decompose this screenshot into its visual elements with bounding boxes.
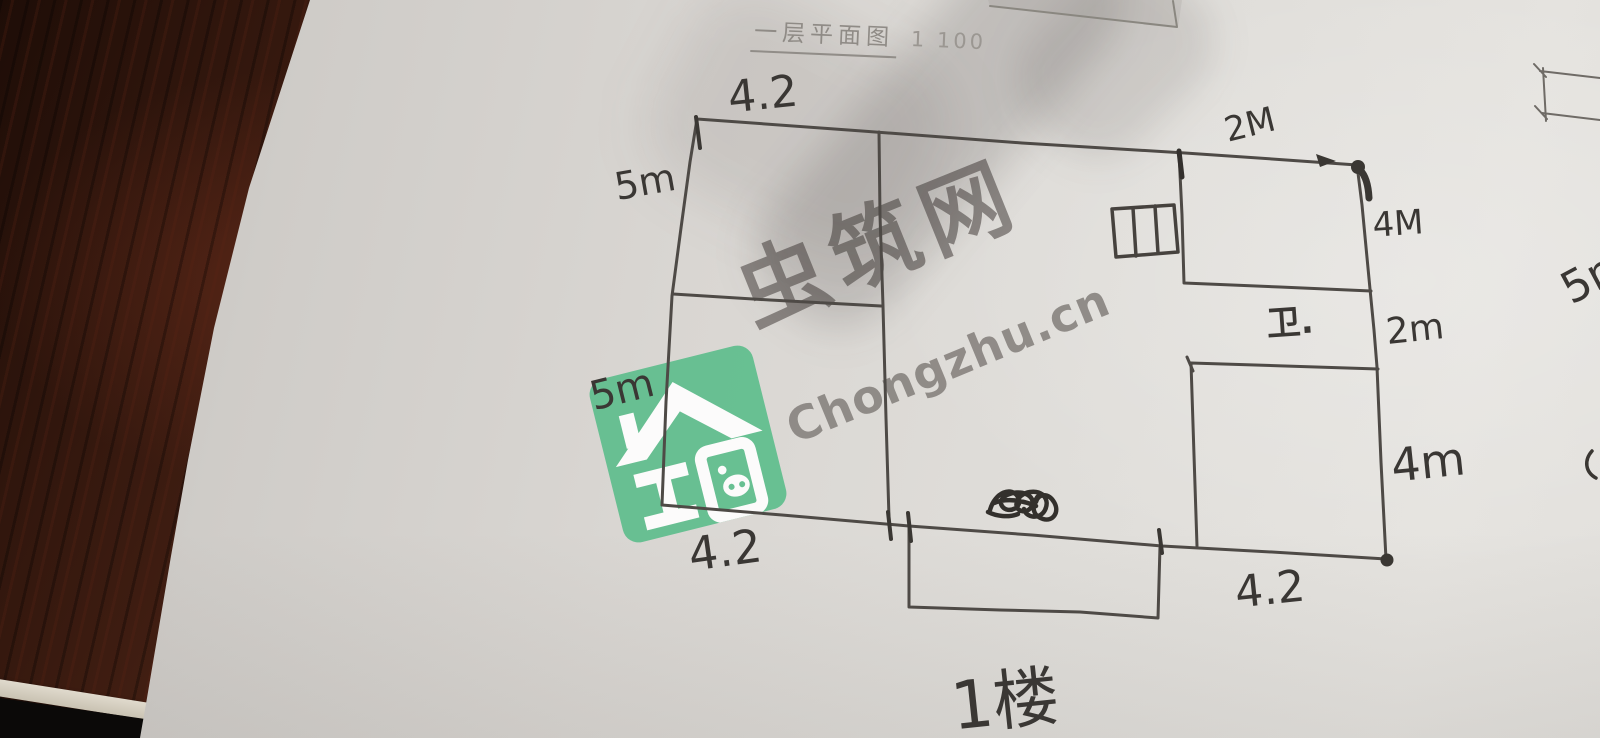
tick-marks-bottom — [888, 512, 1162, 553]
dim-right-middle: 2m — [1384, 309, 1445, 351]
title-text: 一层平面图 — [750, 19, 897, 58]
room-label-bathroom: 卫. — [1265, 304, 1314, 341]
dim-bottom-right: 4.2 — [1233, 564, 1307, 615]
dim-left-upper: 5m — [612, 158, 679, 206]
interior-wall-horizontal — [673, 294, 881, 306]
dim-top-left: 4.2 — [726, 69, 800, 120]
corner-serif — [696, 117, 700, 148]
window-icon — [1112, 205, 1178, 257]
porch-outline — [909, 526, 1160, 618]
title-scale: 1 100 — [910, 27, 986, 54]
floor-label: 1楼 — [948, 664, 1062, 738]
neighbor-dimension-lines — [1534, 64, 1600, 121]
dim-bottom-left: 4.2 — [686, 522, 765, 578]
bottomright-room-wall — [1191, 363, 1197, 546]
topright-room-wall — [1179, 153, 1371, 291]
dim-right-upper: 4M — [1371, 205, 1424, 242]
overlay-sheet — [988, 0, 1182, 27]
corner-dot-bottomright — [1381, 554, 1394, 567]
dim-right-lower: 4m — [1389, 435, 1467, 488]
tick-mark-top — [1179, 151, 1182, 177]
interior-wall-vertical — [879, 132, 889, 518]
photo-of-floorplan-sketch: 虫筑网 Chongzhu.cn — [0, 0, 1600, 738]
scribble-mark — [988, 491, 1056, 519]
bathroom-wall — [1187, 357, 1378, 371]
partial-stroke — [1587, 451, 1596, 478]
floorplan-drawing — [0, 0, 1600, 738]
arrow-mark-icon — [1316, 154, 1336, 167]
